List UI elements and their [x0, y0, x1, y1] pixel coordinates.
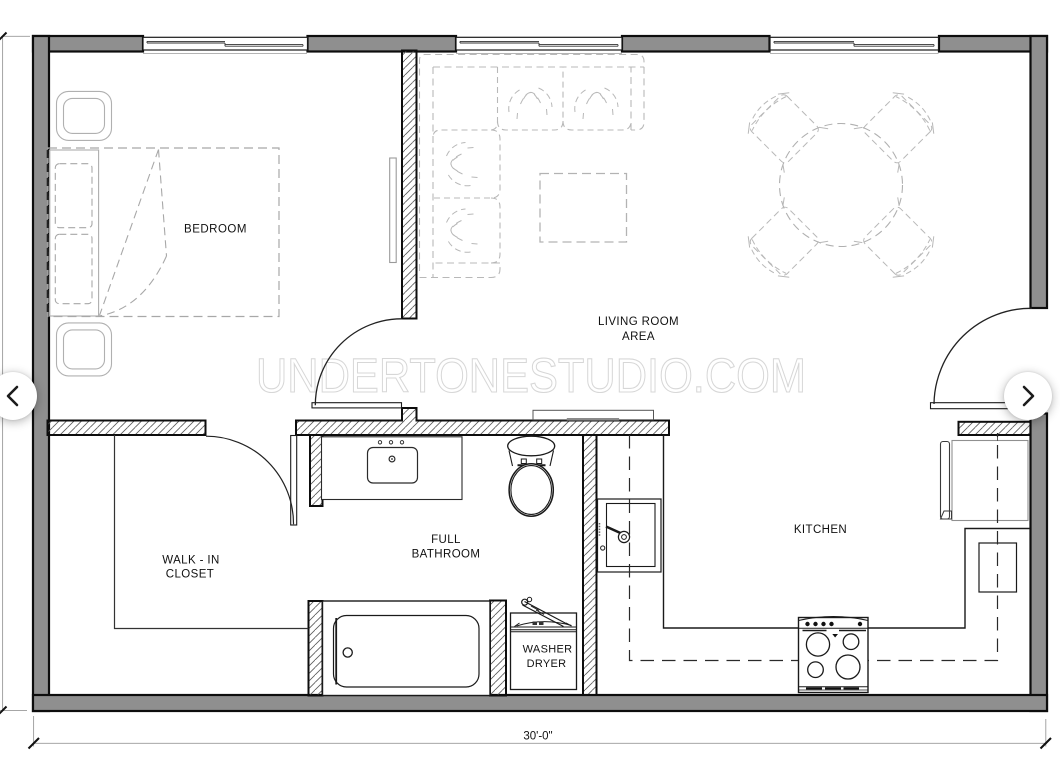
svg-text:CLOSET: CLOSET — [166, 569, 214, 581]
svg-text:BATHROOM: BATHROOM — [412, 549, 481, 561]
svg-text:FULL: FULL — [431, 534, 461, 546]
svg-text:DRYER: DRYER — [527, 658, 567, 670]
svg-text:AREA: AREA — [622, 331, 655, 343]
svg-text:UNDERTONESTUDIO.COM: UNDERTONESTUDIO.COM — [256, 349, 806, 403]
svg-text:BEDROOM: BEDROOM — [184, 224, 247, 236]
svg-text:WASHER: WASHER — [523, 644, 573, 656]
svg-text:KITCHEN: KITCHEN — [794, 524, 847, 536]
svg-text:LIVING ROOM: LIVING ROOM — [598, 316, 679, 328]
svg-text:30'-0": 30'-0" — [523, 731, 552, 743]
svg-text:WALK - IN: WALK - IN — [162, 555, 219, 567]
